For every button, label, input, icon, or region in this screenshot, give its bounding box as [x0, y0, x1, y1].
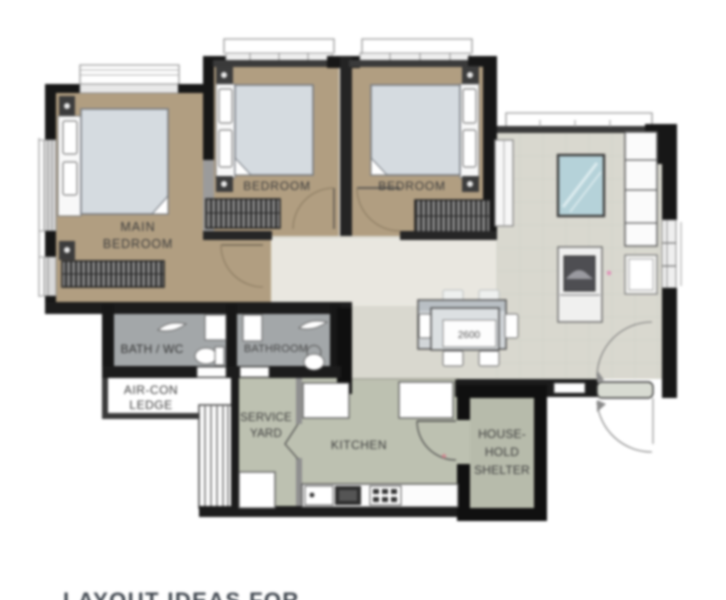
svg-text:BATHROOM: BATHROOM [244, 343, 308, 355]
svg-text:2600: 2600 [458, 330, 481, 341]
svg-text:HOLD: HOLD [485, 445, 519, 459]
svg-text:BEDROOM: BEDROOM [103, 237, 173, 251]
svg-text:BEDROOM: BEDROOM [243, 179, 311, 193]
svg-text:AIR-CON: AIR-CON [124, 383, 178, 397]
svg-text:KITCHEN: KITCHEN [331, 438, 387, 452]
svg-text:HOUSE-: HOUSE- [478, 427, 526, 441]
svg-text:SERVICE: SERVICE [240, 412, 292, 424]
svg-text:LEDGE: LEDGE [129, 398, 172, 412]
svg-text:BEDROOM: BEDROOM [378, 179, 446, 193]
svg-text:BATH / WC: BATH / WC [121, 342, 184, 356]
svg-text:YARD: YARD [250, 428, 282, 440]
svg-text:MAIN: MAIN [120, 220, 155, 234]
svg-text:SHELTER: SHELTER [474, 463, 530, 477]
svg-text:LAYOUT IDEAS FOR: LAYOUT IDEAS FOR [63, 588, 300, 600]
